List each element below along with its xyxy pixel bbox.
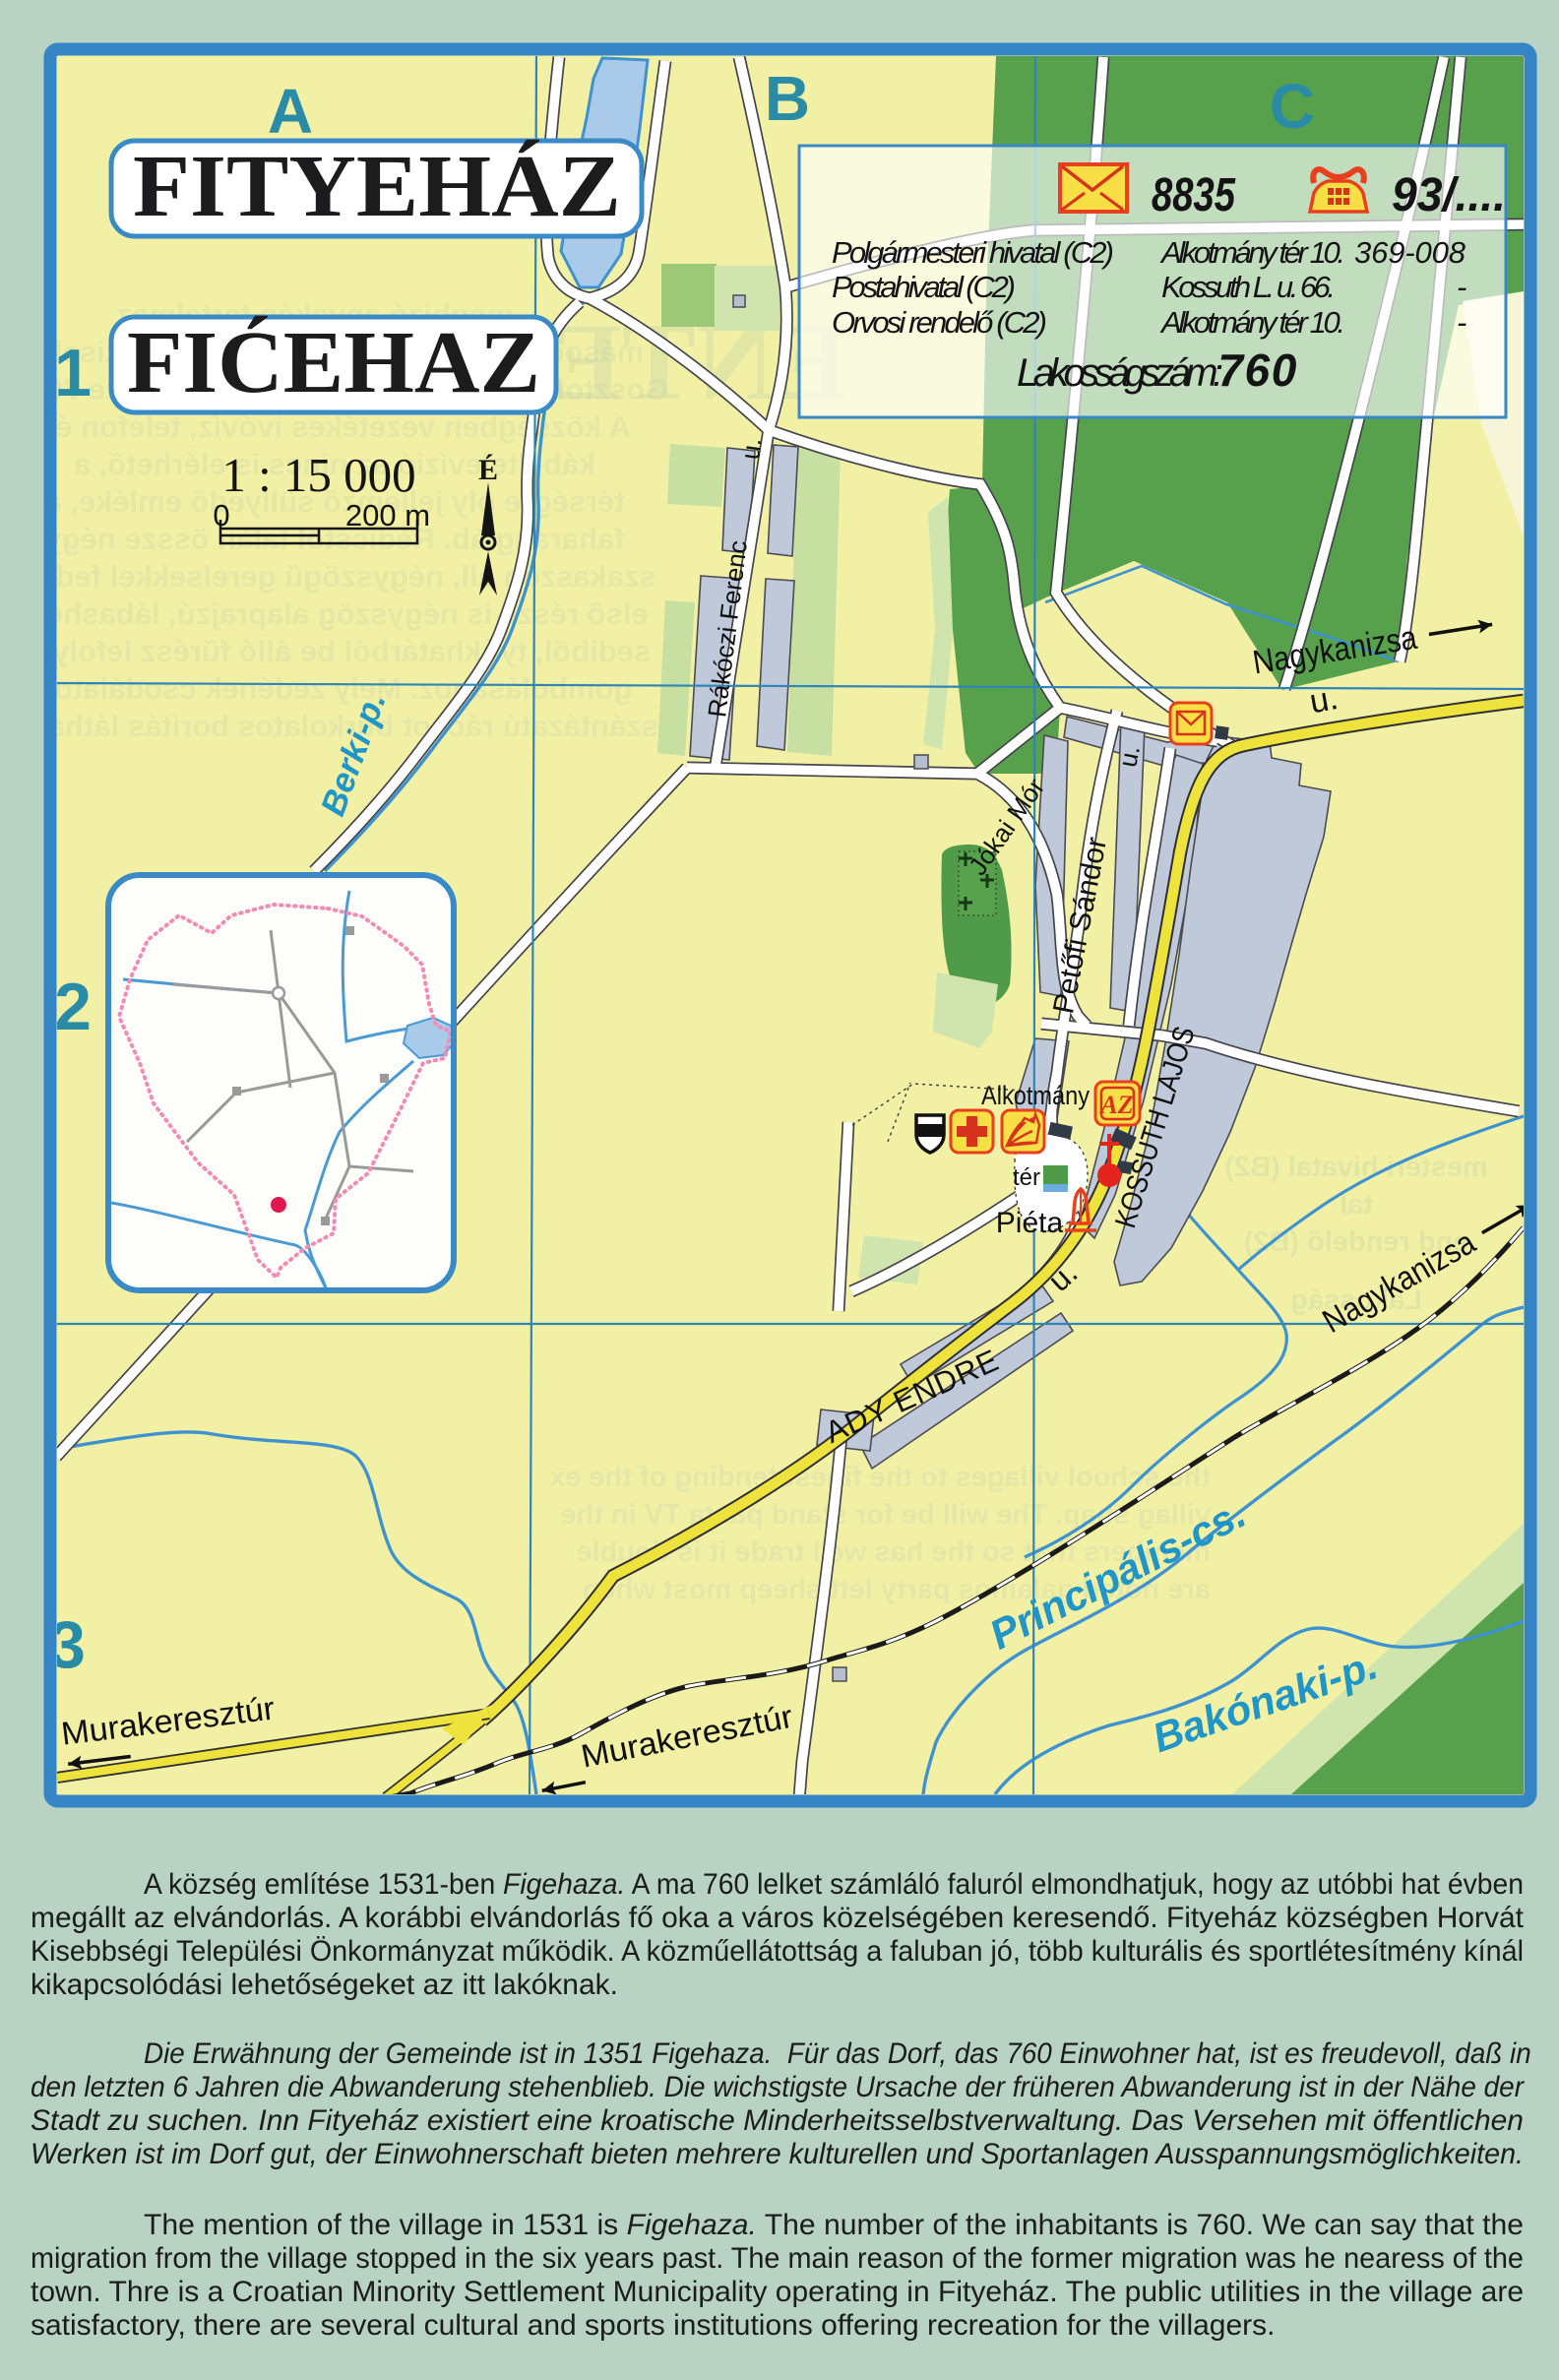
svg-text:FITYEHÁZ: FITYEHÁZ xyxy=(133,138,621,235)
svg-text:200 m: 200 m xyxy=(345,498,430,532)
svg-text:Polgármesteri hivatal (C2): Polgármesteri hivatal (C2) xyxy=(832,235,1114,270)
svg-text:sediből, tyúkhatárból be álló: sediből, tyúkhatárból be álló fűrész lef… xyxy=(19,634,652,668)
svg-text:tér: tér xyxy=(1013,1164,1040,1191)
svg-text:B: B xyxy=(765,63,810,134)
svg-text:mesteri hivatal (B2): mesteri hivatal (B2) xyxy=(1224,1152,1488,1183)
svg-text:Alkotmány: Alkotmány xyxy=(981,1081,1090,1110)
svg-text:É: É xyxy=(478,454,498,486)
svg-text:Lakosságszám:760: Lakosságszám:760 xyxy=(1017,344,1297,396)
svg-text:Piéta: Piéta xyxy=(996,1207,1064,1239)
svg-text:Kossuth L. u. 66.: Kossuth L. u. 66. xyxy=(1161,270,1336,304)
svg-text:A: A xyxy=(268,76,313,147)
svg-text:the school villages to the fin: the school villages to the finest tendin… xyxy=(549,1462,1211,1493)
svg-text:8835: 8835 xyxy=(1152,169,1236,221)
svg-text:2: 2 xyxy=(54,970,92,1044)
svg-text:szakaszon áll, négyszögű gerel: szakaszon áll, négyszögű gerelsekkel fed… xyxy=(13,559,655,594)
svg-text:Postahivatal (C2): Postahivatal (C2) xyxy=(832,270,1016,304)
svg-text:Alkotmány tér 10.: Alkotmány tér 10. xyxy=(1159,305,1345,340)
svg-text:gombolásához. Mely zedének cso: gombolásához. Mely zedének csodálatos xyxy=(37,671,633,706)
svg-text:1 : 15 000: 1 : 15 000 xyxy=(221,448,415,502)
svg-text:369-008: 369-008 xyxy=(1354,235,1466,270)
svg-text:FIĆEHAZ: FIĆEHAZ xyxy=(127,314,540,411)
svg-text:Alkotmány tér 10.: Alkotmány tér 10. xyxy=(1159,235,1345,270)
svg-text:1: 1 xyxy=(54,336,92,410)
svg-text:-: - xyxy=(1457,305,1466,340)
svg-text:AZ: AZ xyxy=(1098,1091,1133,1119)
svg-text:u.: u. xyxy=(735,436,768,462)
svg-text:első része is négyszög alapraj: első része is négyszög alaprajzú, lábash… xyxy=(20,596,648,631)
svg-text:Orvosi rendelő (C2): Orvosi rendelő (C2) xyxy=(832,305,1047,340)
svg-text:tal: tal xyxy=(1340,1189,1373,1221)
svg-text:-: - xyxy=(1457,270,1466,304)
svg-text:C: C xyxy=(1270,71,1315,142)
svg-text:0: 0 xyxy=(213,498,229,532)
svg-text:93/....: 93/.... xyxy=(1392,169,1506,221)
svg-text:szántázatú rácsot burkolatos b: szántázatú rácsot burkolatos borítás lát… xyxy=(11,709,658,743)
